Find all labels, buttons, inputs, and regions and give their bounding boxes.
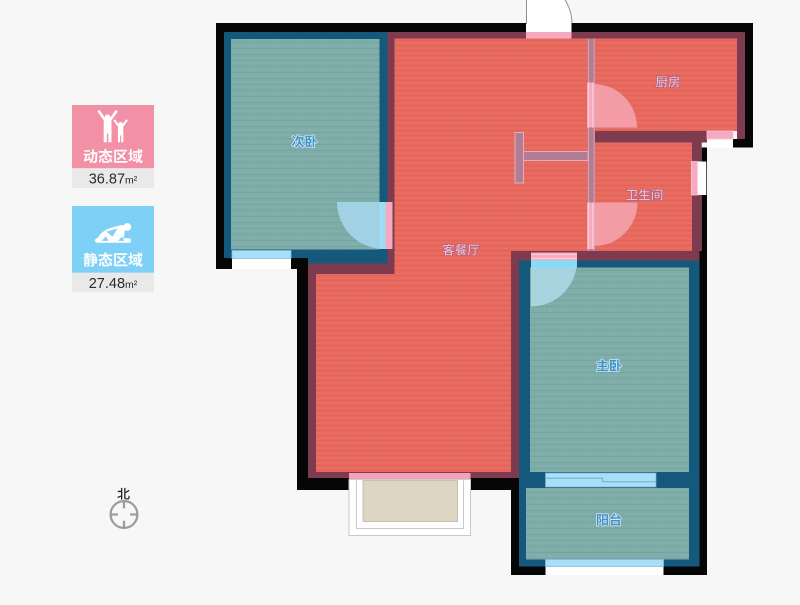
svg-text:27.48m²: 27.48m² [89,276,138,292]
svg-text:36.87m²: 36.87m² [89,172,138,188]
